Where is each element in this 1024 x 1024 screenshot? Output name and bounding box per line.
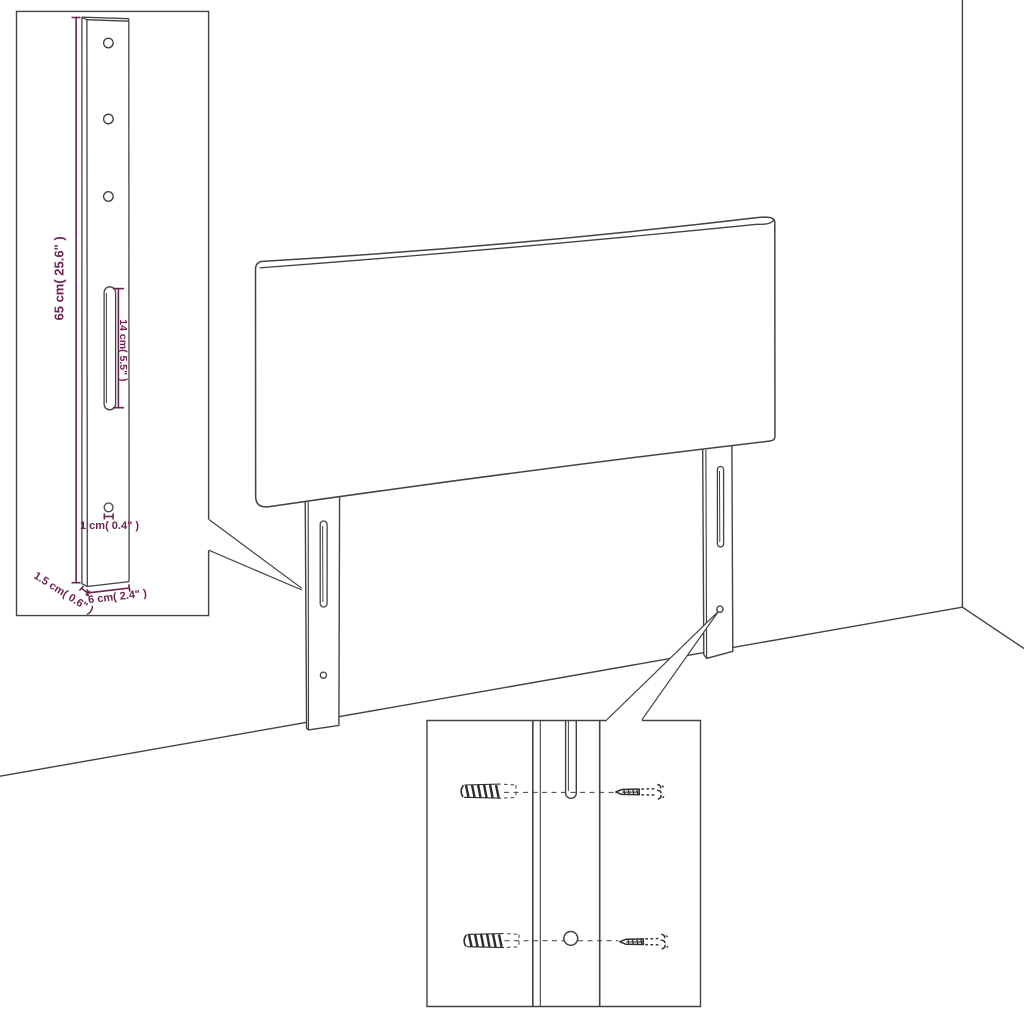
svg-text:14 cm( 5.5" ): 14 cm( 5.5" ) bbox=[117, 319, 129, 381]
svg-text:65 cm( 25.6" ): 65 cm( 25.6" ) bbox=[52, 236, 67, 320]
svg-text:1 cm( 0.4" ): 1 cm( 0.4" ) bbox=[80, 520, 139, 532]
